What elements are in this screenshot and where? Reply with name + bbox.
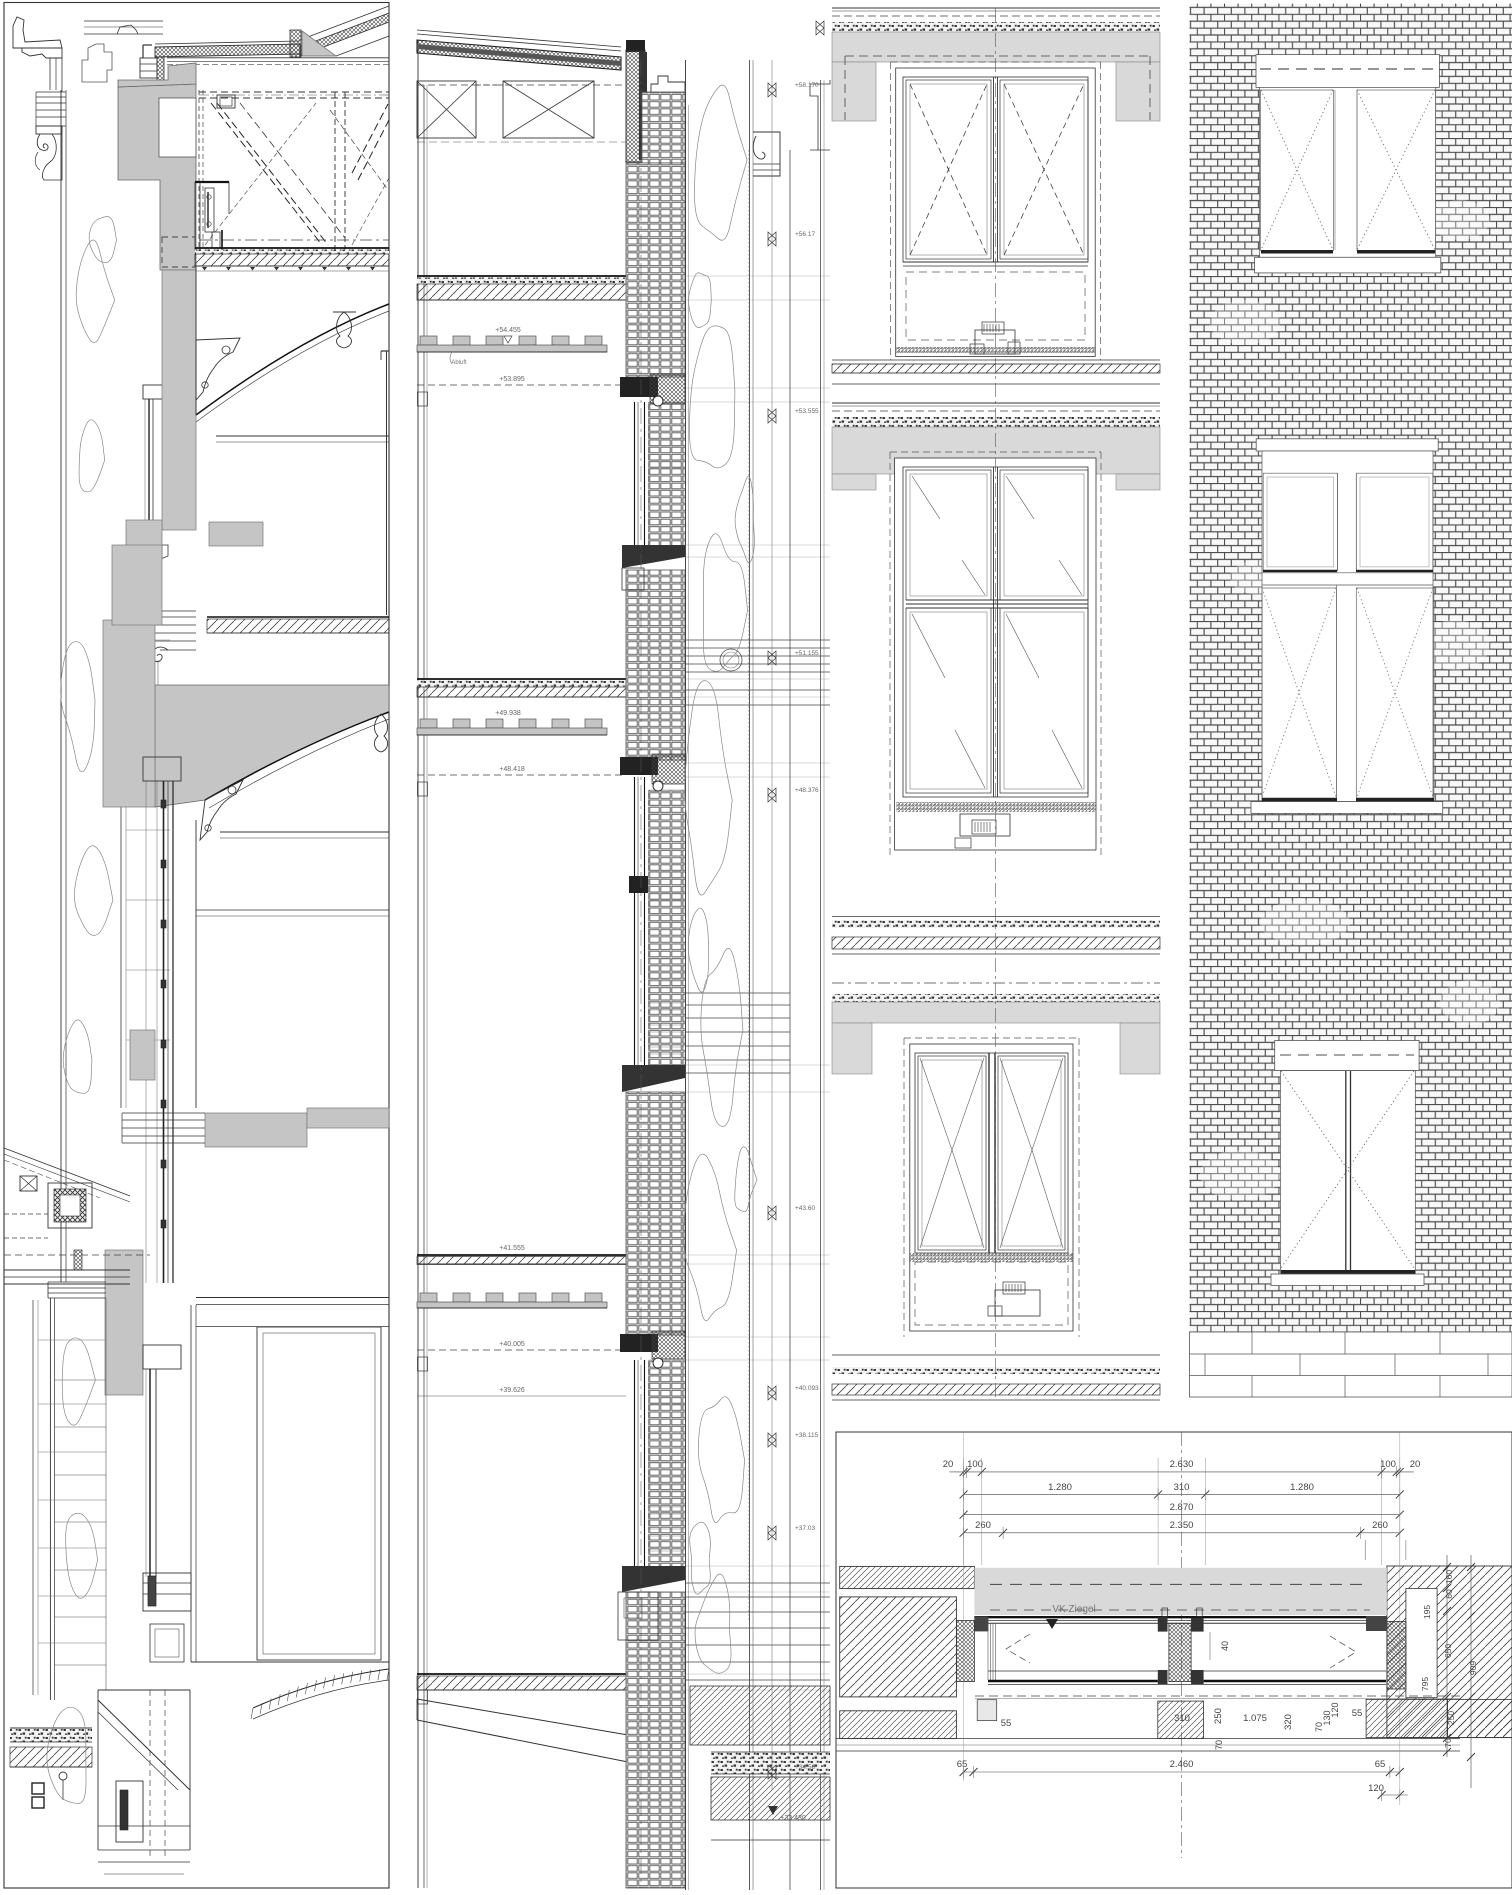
svg-text:1.280: 1.280 xyxy=(1290,1482,1314,1493)
svg-text:+40.005: +40.005 xyxy=(499,1341,525,1348)
svg-text:20: 20 xyxy=(1410,1459,1421,1470)
svg-text:250: 250 xyxy=(1213,1708,1224,1724)
svg-text:+58.170: +58.170 xyxy=(795,82,819,89)
svg-text:120: 120 xyxy=(1330,1702,1340,1717)
svg-text:60: 60 xyxy=(1444,1589,1454,1599)
svg-text:795: 795 xyxy=(1420,1677,1430,1691)
svg-text:65: 65 xyxy=(957,1759,968,1770)
svg-text:+56.17: +56.17 xyxy=(795,231,815,238)
svg-text:310: 310 xyxy=(1174,1713,1190,1724)
svg-text:+51.155: +51.155 xyxy=(795,650,819,657)
svg-text:250: 250 xyxy=(1446,1711,1456,1725)
svg-text:1.075: 1.075 xyxy=(1243,1713,1267,1724)
svg-text:55: 55 xyxy=(1352,1708,1363,1719)
svg-text:650: 650 xyxy=(1443,1644,1453,1658)
svg-text:+40.093: +40.093 xyxy=(795,1385,819,1392)
svg-text:100: 100 xyxy=(967,1459,983,1470)
svg-text:260: 260 xyxy=(975,1520,991,1531)
svg-text:+54.455: +54.455 xyxy=(495,327,521,334)
svg-text:909: 909 xyxy=(1468,1661,1478,1675)
svg-text:+43.60: +43.60 xyxy=(795,1205,815,1212)
svg-text:+49.938: +49.938 xyxy=(495,710,521,717)
svg-text:+48.376: +48.376 xyxy=(795,787,819,794)
svg-text:120: 120 xyxy=(1368,1783,1384,1794)
svg-text:1.280: 1.280 xyxy=(1048,1482,1072,1493)
svg-text:+39.626: +39.626 xyxy=(499,1387,525,1394)
svg-text:320: 320 xyxy=(1283,1714,1294,1730)
svg-text:+53.555: +53.555 xyxy=(795,408,819,415)
svg-text:70: 70 xyxy=(1214,1740,1224,1750)
svg-text:+41.555: +41.555 xyxy=(499,1245,525,1252)
svg-text:40: 40 xyxy=(1220,1641,1230,1651)
svg-text:VK Ziegel: VK Ziegel xyxy=(1052,1604,1095,1615)
svg-text:260: 260 xyxy=(1372,1520,1388,1531)
svg-text:55: 55 xyxy=(1001,1718,1012,1729)
svg-text:+38.115: +38.115 xyxy=(795,1432,819,1439)
svg-text:20: 20 xyxy=(943,1459,954,1470)
svg-text:2.460: 2.460 xyxy=(1170,1759,1194,1770)
svg-text:195: 195 xyxy=(1422,1605,1432,1619)
svg-text:70: 70 xyxy=(1443,1738,1453,1748)
svg-text:100: 100 xyxy=(1380,1459,1396,1470)
svg-text:65: 65 xyxy=(1375,1759,1386,1770)
svg-text:+37.03: +37.03 xyxy=(795,1525,815,1532)
svg-text:+33.430: +33.430 xyxy=(780,1815,806,1822)
svg-text:+53.895: +53.895 xyxy=(499,376,525,383)
svg-text:+34.56: +34.56 xyxy=(795,1764,815,1771)
svg-text:160: 160 xyxy=(1444,1570,1454,1584)
svg-text:+48.418: +48.418 xyxy=(499,766,525,773)
svg-text:Abluft: Abluft xyxy=(451,360,467,366)
